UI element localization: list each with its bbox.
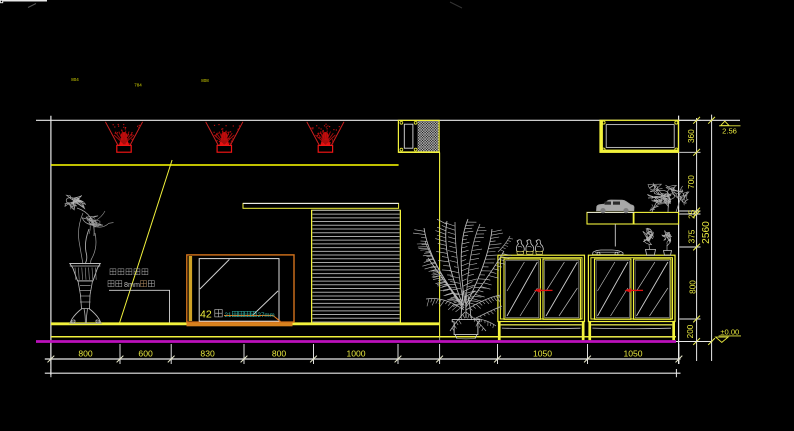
svg-text:1050: 1050 — [623, 348, 642, 358]
svg-text:2.56: 2.56 — [722, 126, 737, 135]
svg-text:2560: 2560 — [701, 221, 712, 244]
svg-text:800: 800 — [688, 280, 697, 294]
svg-text:375: 375 — [687, 229, 696, 243]
svg-text:808: 808 — [201, 78, 209, 83]
svg-text:200: 200 — [686, 324, 695, 338]
svg-text:700: 700 — [687, 175, 696, 189]
svg-text:1050: 1050 — [533, 348, 552, 358]
svg-text:±0.00: ±0.00 — [720, 327, 739, 336]
svg-text:784: 784 — [134, 83, 142, 88]
svg-text:600: 600 — [138, 348, 153, 358]
svg-text:800: 800 — [78, 348, 93, 358]
svg-text:25: 25 — [687, 209, 696, 219]
svg-text:27mm: 27mm — [258, 312, 275, 319]
svg-text:42: 42 — [200, 308, 212, 320]
svg-text:804: 804 — [71, 77, 79, 82]
svg-text:360: 360 — [687, 129, 696, 143]
svg-text:830: 830 — [200, 348, 215, 358]
svg-text:8mm: 8mm — [124, 280, 140, 289]
svg-text:800: 800 — [272, 348, 287, 358]
svg-text:1000: 1000 — [346, 348, 365, 358]
svg-text:21: 21 — [225, 312, 232, 319]
